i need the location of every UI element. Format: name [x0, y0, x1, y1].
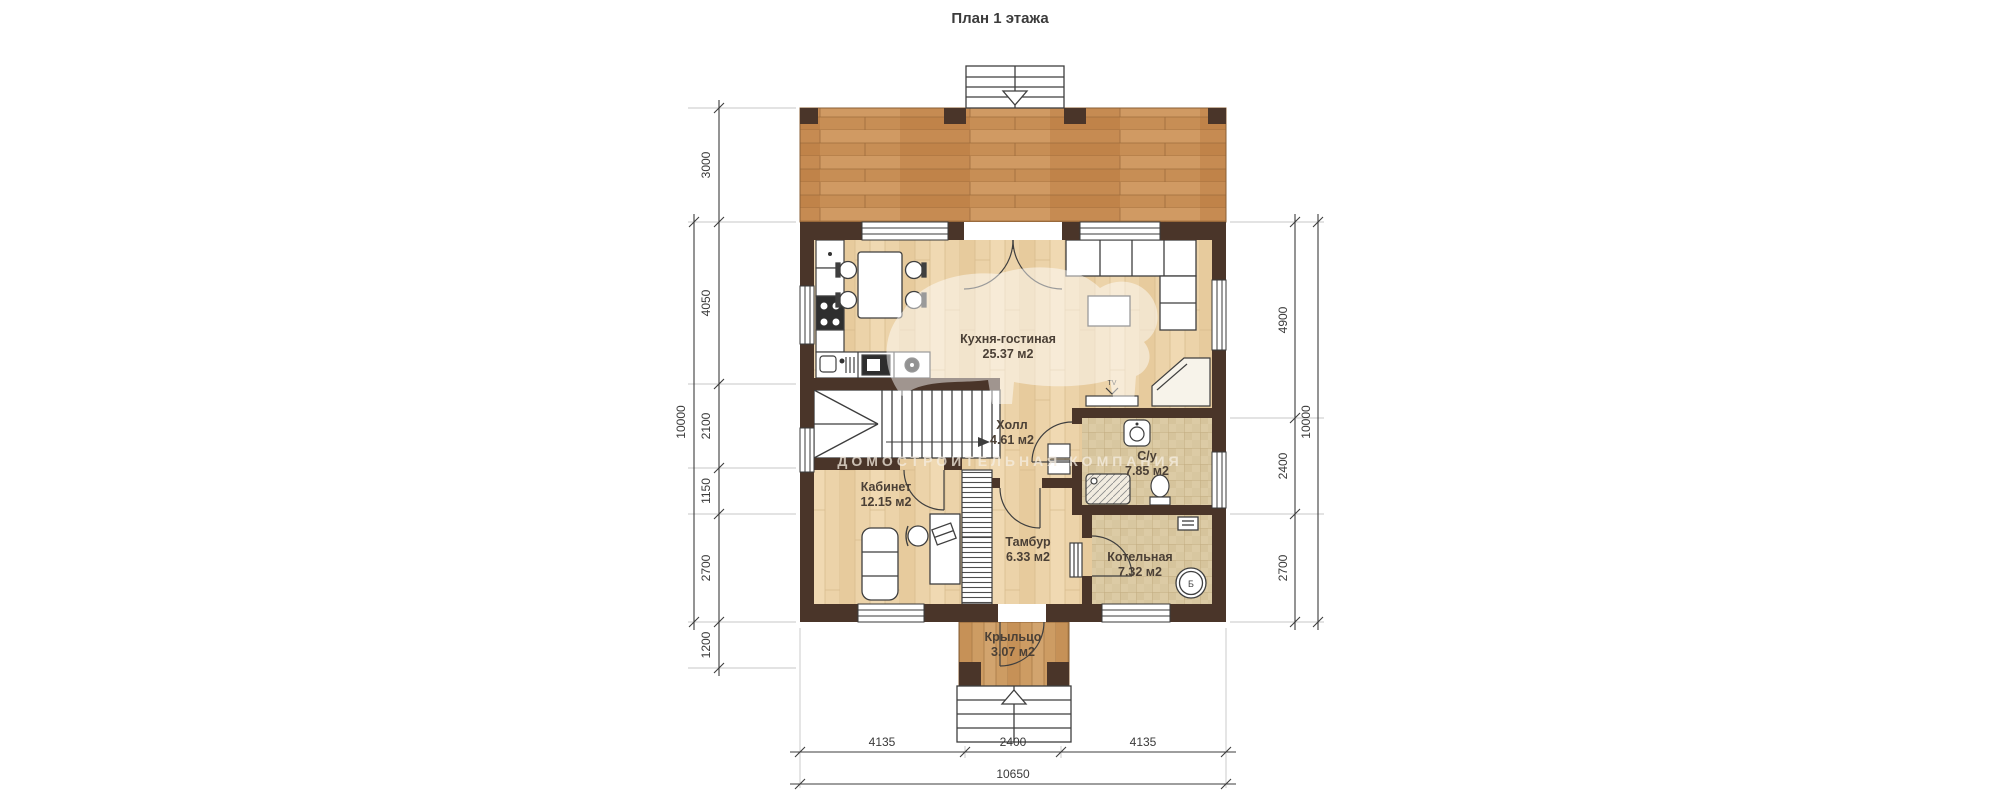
radiator-icon [1070, 543, 1082, 577]
wall-bathroom-boiler [1082, 505, 1212, 515]
dim-left-3: 1150 [699, 478, 713, 504]
dim-bottom-total: 10650 [996, 767, 1029, 781]
room-area: 25.37 м2 [960, 347, 1056, 362]
chair-icon [840, 262, 857, 279]
dim-left-0: 3000 [699, 152, 713, 179]
dim-right-1: 2400 [1276, 453, 1290, 480]
room-label-tambour: Тамбур 6.33 м2 [1005, 535, 1050, 565]
dim-left-1: 4050 [699, 290, 713, 317]
room-label-office: Кабинет 12.15 м2 [861, 480, 912, 510]
window-icon [800, 428, 814, 472]
dim-right-total: 10000 [1299, 405, 1313, 438]
dim-left-5: 1200 [699, 632, 713, 659]
room-name: С/у [1125, 449, 1169, 464]
sofa-icon [1066, 240, 1196, 276]
room-label-porch: Крыльцо 3.07 м2 [985, 630, 1042, 660]
wall-hall-bathroom [1072, 408, 1082, 424]
window-icon [1212, 280, 1226, 350]
boiler-letter: Б [1188, 579, 1194, 589]
window-icon [858, 604, 924, 622]
wall-tambour-boiler [1082, 515, 1092, 538]
room-name: Крыльцо [985, 630, 1042, 645]
window-icon [800, 286, 814, 344]
dim-bottom-1: 2400 [1000, 735, 1027, 749]
dim-left-4: 2700 [699, 555, 713, 582]
sink-icon [820, 356, 836, 372]
entrance-door-opening [998, 604, 1046, 622]
wall-hall-tambour [992, 478, 1000, 488]
room-label-hall: Холл 4.61 м2 [990, 418, 1034, 448]
room-label-bathroom: С/у 7.85 м2 [1125, 449, 1169, 479]
room-area: 7.85 м2 [1125, 464, 1169, 479]
dim-bottom-2: 4135 [1130, 735, 1157, 749]
room-name: Тамбур [1005, 535, 1050, 550]
wardrobe-cabinet [962, 470, 992, 604]
floor-plan-drawing: TV [0, 0, 2000, 800]
wall-hall-tambour [1042, 478, 1072, 488]
staircase-icon [814, 390, 1000, 458]
window-icon [1080, 222, 1160, 240]
wall-hall-bathroom [1072, 462, 1082, 515]
room-label-boiler: Котельная 7.32 м2 [1107, 550, 1172, 580]
terrace-post [800, 108, 818, 124]
chair-icon [906, 262, 923, 279]
window-icon [862, 222, 948, 240]
chair-icon [840, 292, 857, 309]
dining-table-icon [858, 252, 902, 318]
room-name: Кабинет [861, 480, 912, 495]
toilet-tank [1150, 497, 1170, 505]
terrace-post [1208, 108, 1226, 124]
room-area: 4.61 м2 [990, 433, 1034, 448]
porch-steps-icon [957, 686, 1071, 742]
dim-left-2: 2100 [699, 413, 713, 440]
room-area: 6.33 м2 [1005, 550, 1050, 565]
office-chair-icon [908, 526, 928, 546]
room-area: 3.07 м2 [985, 645, 1042, 660]
dim-bottom-0: 4135 [869, 735, 896, 749]
kitchen-cabinet [816, 330, 844, 352]
room-name: Холл [990, 418, 1034, 433]
office-sofa-icon [862, 528, 898, 600]
terrace-deck [800, 108, 1226, 222]
wall-tambour-boiler [1082, 576, 1092, 604]
terrace-steps-icon [966, 66, 1064, 108]
terrace-post [1064, 108, 1086, 124]
terrace-post [944, 108, 966, 124]
window-icon [1212, 452, 1226, 508]
floor-plan-canvas: План 1 этажа [0, 0, 2000, 800]
wall-exterior-left [800, 222, 814, 622]
window-icon [1102, 604, 1170, 622]
room-name: Кухня-гостиная [960, 332, 1056, 347]
dim-left-total: 10000 [674, 405, 688, 438]
room-area: 12.15 м2 [861, 495, 912, 510]
room-label-kitchen-living: Кухня-гостиная 25.37 м2 [960, 332, 1056, 362]
terrace-door-opening [964, 222, 1062, 240]
wall-living-bathroom [1072, 408, 1212, 418]
room-area: 7.32 м2 [1107, 565, 1172, 580]
dim-right-0: 4900 [1276, 307, 1290, 334]
wall-unit-icon [1178, 517, 1198, 530]
room-name: Котельная [1107, 550, 1172, 565]
dim-right-2: 2700 [1276, 555, 1290, 582]
